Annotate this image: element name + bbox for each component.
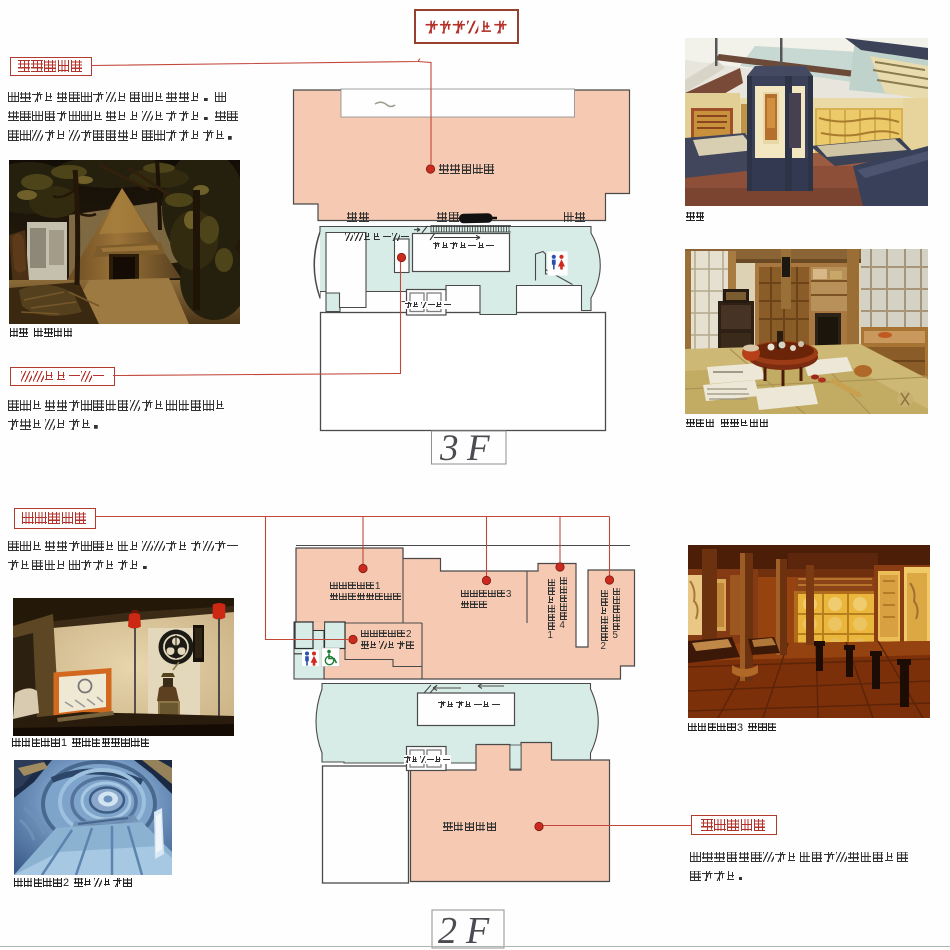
svg-text:2: 2 bbox=[438, 910, 457, 950]
svg-text:3: 3 bbox=[439, 428, 459, 469]
svg-text:F: F bbox=[465, 910, 490, 950]
svg-text:F: F bbox=[466, 428, 490, 469]
